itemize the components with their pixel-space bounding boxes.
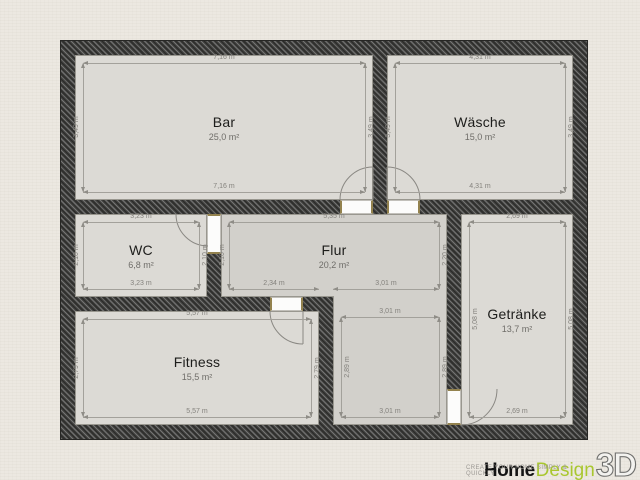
room-label: Fitness (174, 354, 221, 370)
dim-line (83, 192, 365, 193)
dim-line (565, 222, 566, 417)
dim-label: 3,23 m (83, 279, 199, 288)
dim-label: 2,79 m (72, 343, 82, 393)
dim-line (365, 63, 366, 192)
dim-label: 5,35 m (229, 212, 439, 221)
dim-label: 2,69 m (469, 212, 565, 221)
watermark-tagline: CREATE YOUR HOME SIMPLY & QUICKLY (466, 465, 588, 477)
room-area: 20,2 m² (319, 260, 350, 270)
watermark-3d: 3D (596, 446, 636, 480)
dim-label: 3,01 m (333, 279, 439, 288)
dim-label: 2,89 m (441, 342, 451, 392)
room-waesche[interactable]: Wäsche 15,0 m² (387, 55, 573, 200)
room-bar[interactable]: Bar 25,0 m² (75, 55, 373, 200)
dim-label: 3,49 m (367, 102, 377, 152)
dim-label: 2,69 m (469, 407, 565, 416)
dim-line (395, 63, 396, 192)
dim-line (565, 63, 566, 192)
dim-label: 2,34 m (229, 279, 319, 288)
dim-line (395, 192, 565, 193)
dim-label: 5,08 m (567, 294, 577, 344)
dim-line (83, 63, 84, 192)
dim-line (333, 289, 439, 290)
dim-line (83, 63, 365, 64)
dim-label: 7,16 m (83, 53, 365, 62)
dim-label: 7,16 m (83, 182, 365, 191)
homedesign3d-watermark: HomeDesign3D CREATE YOUR HOME SIMPLY & Q… (466, 446, 636, 480)
room-area: 15,5 m² (182, 372, 213, 382)
door-getraenke-flur[interactable] (447, 389, 461, 425)
dim-line (341, 317, 439, 318)
dim-line (341, 417, 439, 418)
dim-label: 2,20 m (441, 230, 451, 280)
dim-line (83, 319, 84, 417)
dim-line (469, 222, 565, 223)
room-label: Getränke (487, 306, 546, 322)
room-area: 15,0 m² (465, 132, 496, 142)
dim-line (229, 289, 319, 290)
dim-line (83, 289, 199, 290)
room-label: Flur (322, 242, 347, 258)
dim-line (83, 319, 311, 320)
dim-line (469, 417, 565, 418)
dim-label: 2,79 m (313, 343, 323, 393)
dim-line (395, 63, 565, 64)
dim-label: 2,10 m (218, 230, 228, 280)
dim-label: 4,31 m (395, 53, 565, 62)
dim-label: 4,31 m (395, 182, 565, 191)
dim-label: 3,49 m (72, 102, 82, 152)
dim-label: 2,10 m (72, 230, 82, 280)
dim-line (469, 222, 470, 417)
room-label: Bar (213, 114, 235, 130)
room-area: 13,7 m² (502, 324, 533, 334)
room-area: 6,8 m² (128, 260, 154, 270)
floorplan: Bar 25,0 m² Wäsche 15,0 m² WC 6,8 m² Flu… (60, 40, 588, 440)
dim-line (229, 222, 439, 223)
room-label: WC (129, 242, 153, 258)
room-area: 25,0 m² (209, 132, 240, 142)
dim-label: 5,08 m (471, 294, 481, 344)
dim-line (199, 222, 200, 289)
dim-line (83, 417, 311, 418)
dim-line (311, 319, 312, 417)
dim-label: 3,01 m (341, 407, 439, 416)
dim-label: 2,89 m (343, 342, 353, 392)
room-label: Wäsche (454, 114, 506, 130)
dim-label: 5,57 m (83, 309, 311, 318)
dim-label: 3,49 m (567, 102, 577, 152)
dim-line (439, 222, 440, 289)
floorplan-canvas: Bar 25,0 m² Wäsche 15,0 m² WC 6,8 m² Flu… (0, 0, 640, 480)
dim-label: 3,49 m (384, 102, 394, 152)
dim-line (341, 317, 342, 417)
dim-label: 3,01 m (341, 307, 439, 316)
dim-line (83, 222, 199, 223)
dim-label: 3,23 m (83, 212, 199, 221)
dim-label: 5,57 m (83, 407, 311, 416)
dim-label: 2,10 m (201, 230, 211, 280)
dim-line (439, 317, 440, 417)
